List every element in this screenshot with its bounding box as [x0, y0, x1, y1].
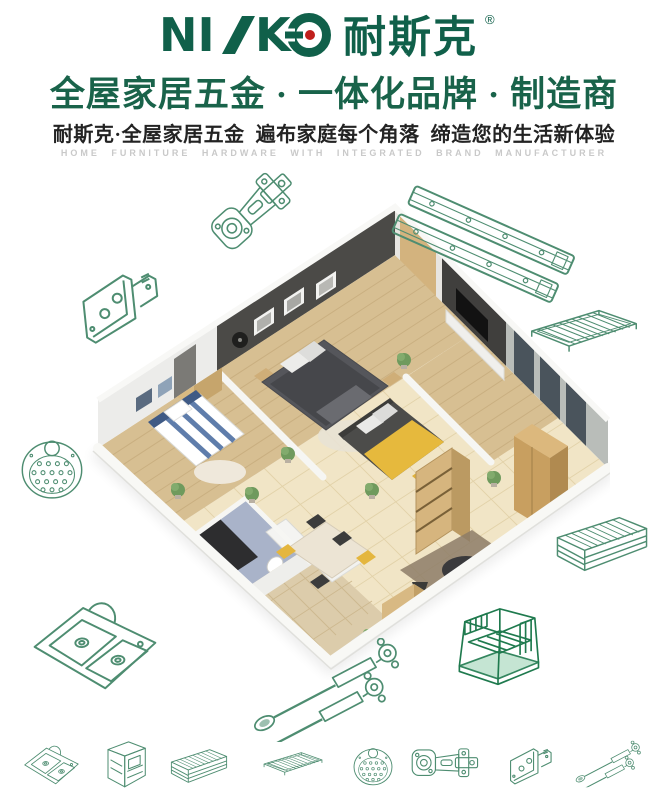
wire-basket-icon — [552, 512, 652, 576]
corner-bracket-icon — [68, 263, 170, 348]
bottom-struts-icon — [572, 736, 644, 792]
bottom-hinge-icon — [410, 742, 482, 784]
dish-rack-icon — [452, 596, 544, 688]
tagline-en: HOME FURNITURE HARDWARE WITH INTEGRATED … — [0, 148, 668, 158]
wire-shelf-icon — [528, 305, 640, 361]
subheadline: 耐斯克·全屋家居五金 遍布家庭每个角落 缔造您的生活新体验 — [0, 118, 668, 147]
logo-text-cn: 耐斯克 — [343, 14, 478, 60]
logo-text-ni: NI — [159, 10, 215, 60]
nisko-logo-icon: NI K 耐斯克 ® — [159, 10, 509, 60]
registered-mark: ® — [485, 12, 495, 27]
bottom-shelf-icon — [262, 748, 324, 782]
logo-red-dot-icon — [305, 30, 315, 40]
brand-logo: NI K 耐斯克 ® — [0, 10, 668, 60]
bottom-bracket-icon — [504, 740, 556, 790]
drawer-slides-icon — [396, 176, 586, 286]
bottom-basket-icon — [168, 746, 230, 786]
headline: 全屋家居五金 · 一体化品牌 · 制造商 — [0, 66, 668, 117]
sink-strainer-icon — [16, 434, 88, 506]
bottom-sink-icon — [18, 738, 83, 792]
kitchen-sink-icon — [20, 586, 169, 706]
logo-slash-icon — [222, 16, 255, 54]
bottom-strainer-icon — [350, 744, 396, 790]
gas-struts-icon — [242, 638, 410, 742]
bottom-cabinet-icon — [100, 738, 152, 792]
